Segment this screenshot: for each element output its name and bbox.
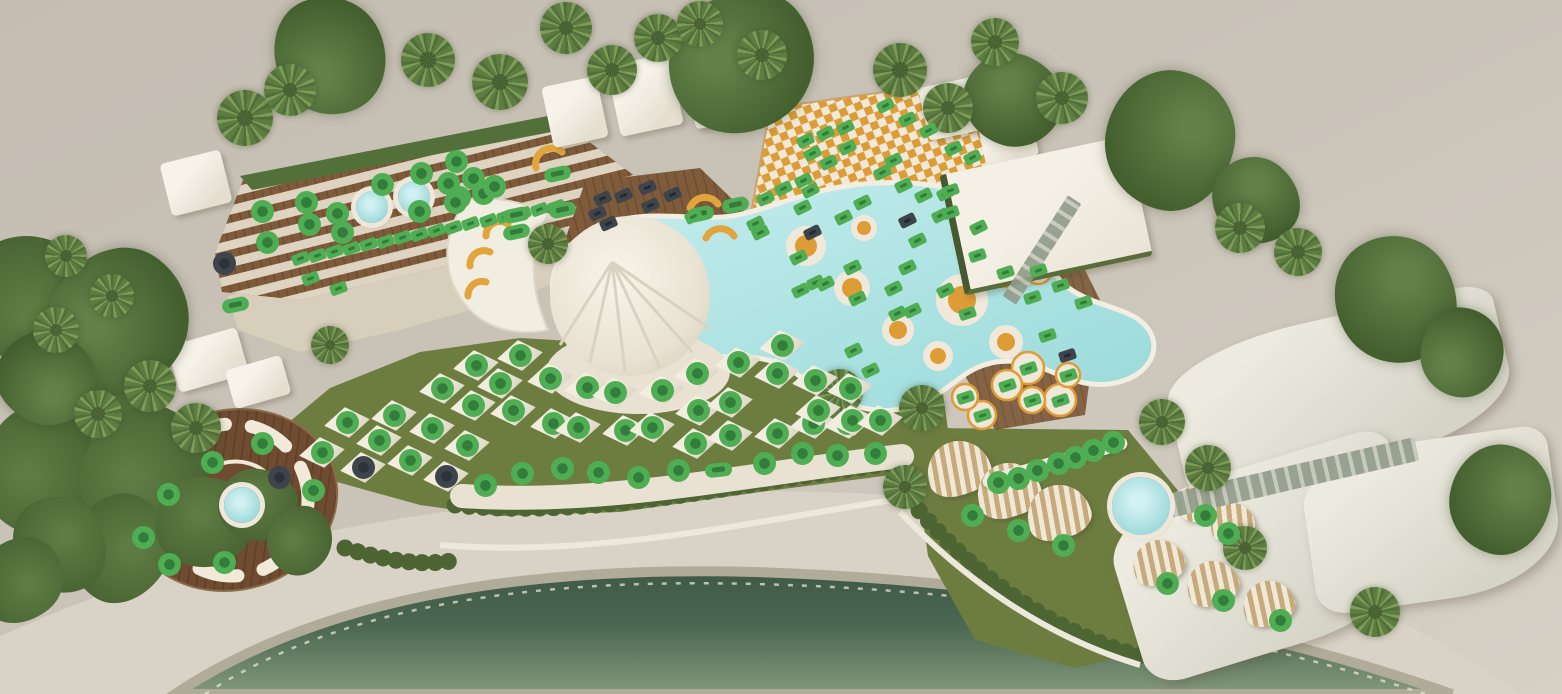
spot-marker-pool-daybeds[interactable] (943, 139, 963, 156)
spot-marker-terrace-tables[interactable] (444, 191, 467, 214)
spot-marker-cabana-seats[interactable] (1212, 589, 1235, 612)
spot-marker-lawn-parasols[interactable] (766, 422, 789, 445)
spot-marker-pool-daybeds[interactable] (773, 179, 793, 196)
spot-marker-lawn-parasols[interactable] (399, 449, 422, 472)
spot-marker-restaurant-tables[interactable] (1022, 289, 1042, 305)
spot-marker-vip-deck-sofas[interactable] (157, 483, 180, 506)
spot-marker-pool-daybeds[interactable] (907, 231, 927, 248)
spot-marker-lawn-parasols[interactable] (651, 379, 674, 402)
spot-marker-lawn-parasols[interactable] (368, 429, 391, 452)
spot-marker-bar-counter-seats[interactable] (987, 471, 1010, 494)
beach-club-map (0, 0, 1562, 694)
spot-marker-lawn-parasols[interactable] (869, 409, 892, 432)
spot-marker-lawn-parasols[interactable] (421, 417, 444, 440)
spot-marker-lounger-pills[interactable] (720, 195, 749, 214)
spot-marker-vip-deck-sofas[interactable] (213, 551, 236, 574)
spot-marker-restaurant-tables[interactable] (1018, 360, 1038, 376)
spot-marker-terrace-sunbeds[interactable] (392, 229, 412, 245)
spot-marker-terrace-sunbeds[interactable] (375, 233, 395, 249)
spot-marker-lawn-parasols[interactable] (687, 399, 710, 422)
spot-marker-dining-tables-occupied[interactable] (592, 190, 612, 207)
spot-marker-pool-daybeds[interactable] (818, 153, 838, 170)
spot-marker-lawn-parasols[interactable] (465, 354, 488, 377)
spot-marker-pool-daybeds[interactable] (683, 207, 703, 224)
spot-marker-restaurant-tables[interactable] (1050, 392, 1070, 408)
spot-marker-lawn-parasols[interactable] (641, 416, 664, 439)
spot-marker-pool-daybeds[interactable] (795, 131, 815, 148)
spot-marker-bar-counter-seats[interactable] (1026, 459, 1049, 482)
spot-marker-pool-daybeds[interactable] (875, 96, 895, 113)
spot-marker-lawn-parasols[interactable] (336, 411, 359, 434)
spot-marker-restaurant-tables[interactable] (955, 389, 975, 405)
spot-marker-cabana-seats[interactable] (1007, 519, 1030, 542)
spot-marker-lawn-parasols[interactable] (539, 367, 562, 390)
spot-marker-lawn-parasols-occupied[interactable] (352, 456, 375, 479)
spot-marker-cabana-seats[interactable] (1194, 504, 1217, 527)
spot-marker-restaurant-tables[interactable] (1022, 392, 1042, 408)
spot-marker-terrace-tables[interactable] (251, 200, 274, 223)
spot-marker-lawn-parasols[interactable] (719, 424, 742, 447)
spot-marker-restaurant-tables[interactable] (997, 377, 1017, 393)
spot-marker-terrace-sunbeds[interactable] (460, 215, 480, 231)
spot-marker-lounger-pills[interactable] (542, 164, 571, 183)
spot-marker-restaurant-tables[interactable] (1028, 262, 1048, 278)
spot-marker-restaurant-tables[interactable] (995, 264, 1015, 280)
spot-marker-lawn-parasols[interactable] (502, 399, 525, 422)
spot-marker-vip-deck-sofas[interactable] (132, 526, 155, 549)
spot-marker-lawn-parasols[interactable] (431, 377, 454, 400)
spot-marker-pool-daybeds[interactable] (935, 281, 955, 298)
spot-marker-restaurant-tables[interactable] (940, 204, 960, 220)
spot-marker-pool-daybeds[interactable] (833, 208, 853, 225)
spot-marker-terrace-tables-occupied[interactable] (213, 252, 236, 275)
spot-marker-bar-counter-seats[interactable] (1102, 431, 1125, 454)
spot-marker-pool-daybeds[interactable] (897, 110, 917, 127)
spot-marker-terrace-tables[interactable] (410, 162, 433, 185)
spot-marker-vip-deck-sofas-occupied[interactable] (268, 466, 291, 489)
spot-marker-lounger-pills[interactable] (501, 222, 530, 241)
spot-marker-lawn-parasols[interactable] (383, 404, 406, 427)
spot-marker-terrace-tables[interactable] (371, 173, 394, 196)
spot-marker-lawn-parasols[interactable] (684, 432, 707, 455)
spot-marker-pool-daybeds[interactable] (843, 341, 863, 358)
spot-marker-dining-tables-occupied[interactable] (640, 197, 660, 214)
spot-marker-lawn-parasols[interactable] (686, 362, 709, 385)
booking-marker-layer (0, 0, 1562, 694)
spot-marker-cabana-seats[interactable] (1217, 522, 1240, 545)
spot-marker-pool-daybeds[interactable] (968, 218, 988, 235)
spot-marker-front-row-pill[interactable] (704, 462, 732, 479)
spot-marker-vip-deck-sofas[interactable] (251, 432, 274, 455)
spot-marker-restaurant-tables[interactable] (1058, 367, 1078, 383)
spot-marker-terrace-sunbeds[interactable] (328, 280, 348, 296)
spot-marker-dining-tables-occupied[interactable] (662, 186, 682, 203)
spot-marker-pool-daybeds[interactable] (847, 289, 867, 306)
spot-marker-front-row-sunbeds[interactable] (474, 474, 497, 497)
spot-marker-pool-daybeds[interactable] (918, 121, 938, 138)
spot-marker-pool-daybeds[interactable] (792, 198, 812, 215)
spot-marker-lawn-parasols[interactable] (509, 344, 532, 367)
spot-marker-lawn-parasols[interactable] (567, 416, 590, 439)
spot-marker-lawn-parasols[interactable] (807, 399, 830, 422)
spot-marker-lawn-parasols[interactable] (841, 409, 864, 432)
spot-marker-dining-tables-occupied[interactable] (637, 179, 657, 196)
spot-marker-terrace-sunbeds[interactable] (290, 250, 310, 266)
spot-marker-pool-daybeds[interactable] (893, 176, 913, 193)
spot-marker-vip-deck-sofas[interactable] (201, 451, 224, 474)
spot-marker-pool-daybeds[interactable] (790, 281, 810, 298)
spot-marker-terrace-sunbeds[interactable] (307, 247, 327, 263)
spot-marker-pool-daybeds[interactable] (755, 189, 775, 206)
spot-marker-pool-daybeds[interactable] (788, 248, 808, 265)
spot-marker-terrace-tables[interactable] (256, 231, 279, 254)
spot-marker-terrace-sunbeds[interactable] (409, 226, 429, 242)
spot-marker-pool-daybeds[interactable] (913, 186, 933, 203)
spot-marker-lawn-parasols[interactable] (727, 351, 750, 374)
spot-marker-front-row-sunbeds[interactable] (627, 466, 650, 489)
spot-marker-terrace-tables[interactable] (295, 191, 318, 214)
spot-marker-pool-daybeds[interactable] (962, 148, 982, 165)
spot-marker-front-row-sunbeds[interactable] (864, 442, 887, 465)
spot-marker-pool-daybeds-occupied[interactable] (897, 211, 917, 228)
spot-marker-pool-daybeds[interactable] (883, 279, 903, 296)
spot-marker-front-row-sunbeds[interactable] (587, 461, 610, 484)
spot-marker-cabana-seats[interactable] (1156, 572, 1179, 595)
spot-marker-front-row-sunbeds[interactable] (826, 444, 849, 467)
spot-marker-front-row-sunbeds[interactable] (667, 459, 690, 482)
spot-marker-cabana-seats[interactable] (1269, 609, 1292, 632)
spot-marker-pool-daybeds[interactable] (802, 144, 822, 161)
spot-marker-terrace-tables[interactable] (331, 221, 354, 244)
spot-marker-pool-daybeds[interactable] (897, 258, 917, 275)
spot-marker-pool-daybeds[interactable] (902, 301, 922, 318)
spot-marker-vip-deck-sofas[interactable] (302, 479, 325, 502)
spot-marker-restaurant-tables[interactable] (1037, 327, 1057, 343)
spot-marker-restaurant-tables-occupied[interactable] (1057, 347, 1077, 363)
spot-marker-lounger-pills[interactable] (501, 205, 530, 224)
spot-marker-lawn-parasols[interactable] (771, 334, 794, 357)
spot-marker-front-row-sunbeds[interactable] (791, 442, 814, 465)
spot-marker-restaurant-tables[interactable] (957, 305, 977, 321)
spot-marker-lawn-parasols[interactable] (604, 381, 627, 404)
spot-marker-terrace-sunbeds[interactable] (426, 222, 446, 238)
spot-marker-pool-daybeds[interactable] (860, 361, 880, 378)
spot-marker-lawn-parasols[interactable] (456, 434, 479, 457)
spot-marker-restaurant-tables[interactable] (1050, 277, 1070, 293)
spot-marker-lawn-parasols[interactable] (489, 372, 512, 395)
spot-marker-vip-deck-sofas[interactable] (158, 553, 181, 576)
spot-marker-pool-daybeds[interactable] (837, 138, 857, 155)
spot-marker-restaurant-tables[interactable] (972, 407, 992, 423)
spot-marker-lawn-parasols[interactable] (839, 377, 862, 400)
spot-marker-pool-daybeds[interactable] (835, 118, 855, 135)
spot-marker-lawn-parasols[interactable] (311, 441, 334, 464)
spot-marker-terrace-sunbeds[interactable] (300, 270, 320, 286)
spot-marker-restaurant-tables[interactable] (940, 182, 960, 198)
spot-marker-terrace-sunbeds[interactable] (324, 243, 344, 259)
spot-marker-pool-daybeds[interactable] (815, 124, 835, 141)
spot-marker-lounger-pills[interactable] (220, 295, 249, 314)
spot-marker-pool-daybeds[interactable] (883, 151, 903, 168)
spot-marker-cabana-seats[interactable] (1052, 534, 1075, 557)
spot-marker-terrace-sunbeds[interactable] (443, 219, 463, 235)
spot-marker-terrace-tables[interactable] (298, 213, 321, 236)
spot-marker-cabana-seats[interactable] (961, 504, 984, 527)
spot-marker-terrace-sunbeds[interactable] (478, 212, 498, 228)
spot-marker-restaurant-tables[interactable] (967, 247, 987, 263)
spot-marker-lawn-parasols-occupied[interactable] (435, 465, 458, 488)
spot-marker-pool-daybeds-occupied[interactable] (802, 223, 822, 240)
spot-marker-front-row-sunbeds[interactable] (753, 452, 776, 475)
spot-marker-front-row-sunbeds[interactable] (551, 457, 574, 480)
spot-marker-terrace-tables[interactable] (408, 200, 431, 223)
spot-marker-terrace-sunbeds[interactable] (358, 236, 378, 252)
spot-marker-terrace-tables[interactable] (445, 150, 468, 173)
spot-marker-pool-daybeds[interactable] (852, 193, 872, 210)
spot-marker-lawn-parasols[interactable] (462, 394, 485, 417)
spot-marker-front-row-sunbeds[interactable] (511, 462, 534, 485)
spot-marker-terrace-sunbeds[interactable] (529, 201, 549, 217)
spot-marker-pool-daybeds[interactable] (842, 258, 862, 275)
spot-marker-lawn-parasols[interactable] (766, 362, 789, 385)
spot-marker-restaurant-tables[interactable] (1073, 294, 1093, 310)
spot-marker-dining-tables-occupied[interactable] (613, 187, 633, 204)
spot-marker-lawn-parasols[interactable] (719, 391, 742, 414)
spot-marker-terrace-tables[interactable] (483, 175, 506, 198)
spot-marker-lawn-parasols[interactable] (804, 369, 827, 392)
